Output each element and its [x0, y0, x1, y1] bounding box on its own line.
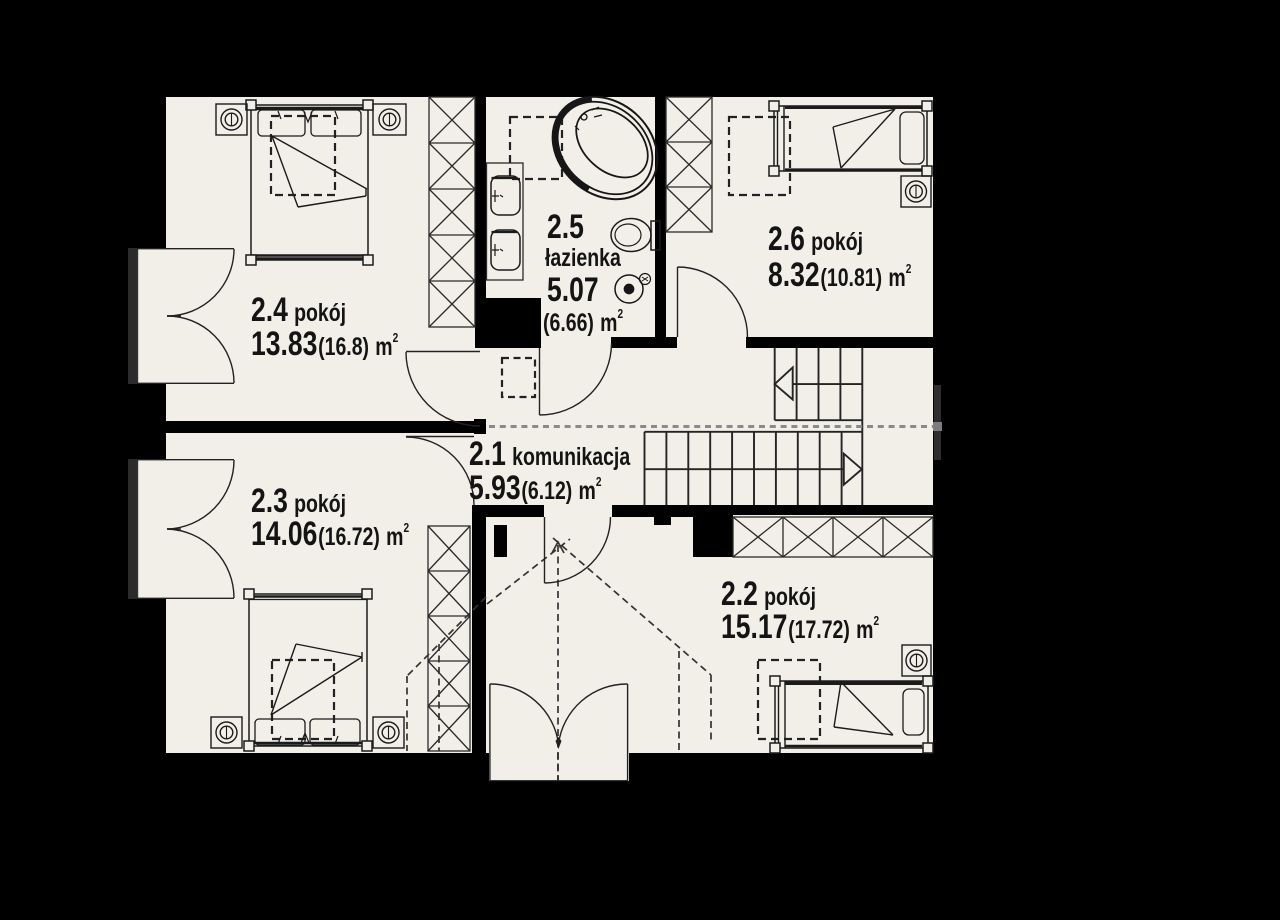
svg-text:5.07: 5.07: [547, 271, 599, 309]
svg-text:(6.66)m2: (6.66)m2: [543, 307, 624, 337]
svg-text:łazienka: łazienka: [545, 244, 621, 272]
svg-text:2.5: 2.5: [547, 208, 584, 246]
